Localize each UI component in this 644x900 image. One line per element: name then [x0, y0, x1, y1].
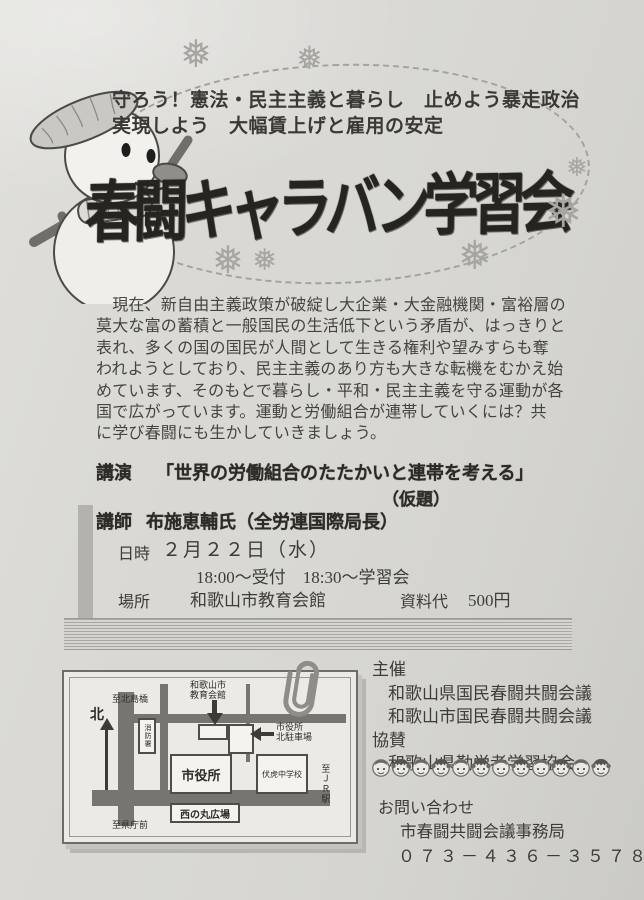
intro-line: 莫大な富の蓄積と一般国民の生活低下という矛盾が、はっきりと	[96, 316, 576, 337]
child-face-icon	[490, 756, 511, 780]
child-face-icon	[470, 756, 491, 780]
map-education-hall-label-line1: 和歌山市	[190, 680, 226, 690]
children-faces	[370, 756, 615, 780]
child-face-icon	[590, 756, 611, 780]
snowflake-icon: ❅	[252, 246, 277, 276]
child-face-icon	[390, 756, 411, 780]
intro-line: われようとしており、民主主義のあり方も大きな転機をむかえ始	[96, 359, 576, 380]
child-face-icon	[410, 756, 431, 780]
place-value: 和歌山市教育会館	[190, 586, 326, 611]
down-arrow-shaft	[212, 700, 217, 714]
lecturer-name: 布施恵輔氏（全労連国際局長）	[146, 512, 398, 532]
lecturer-row: 講師布施恵輔氏（全労連国際局長）	[96, 508, 398, 534]
child-face-icon	[510, 756, 531, 780]
snowflake-icon: ❅	[212, 242, 244, 280]
intro-line: に学び春闘にも生かしていきましょう。	[96, 423, 576, 444]
snowflake-icon: ❅	[296, 42, 323, 74]
map-parking-label: 市役所 北駐車場	[276, 722, 312, 743]
snowflake-icon: ❅	[458, 236, 492, 276]
child-face-icon	[370, 756, 391, 780]
map-education-hall-label-line2: 教育会館	[190, 690, 226, 700]
event-time: 18:00～受付 18:30～学習会	[196, 563, 409, 588]
host-name: 和歌山市国民春闘共闘会議	[388, 702, 592, 727]
left-arrow-icon	[250, 727, 261, 741]
place-label: 場所	[118, 588, 150, 612]
north-arrow-shaft	[105, 728, 108, 790]
intro-line: 現在、新自由主義政策が破綻し大企業・大金融機関・富裕層の	[96, 295, 576, 316]
slogan-line-1: 守ろう！憲法・民主主義と暮らし 止めよう暴走政治	[112, 85, 580, 112]
intro-line: 表れ、多くの国の国民が人間として生きる権利や望みすらも奪	[96, 338, 576, 359]
child-face-icon	[450, 756, 471, 780]
intro-line: めています、そのもとで暮らし・平和・民主主義を守る運動が各	[96, 381, 576, 402]
intro-paragraph: 現在、新自由主義政策が破綻し大企業・大金融機関・富裕層の 莫大な富の蓄積と一般国…	[96, 295, 576, 445]
map-education-hall-label: 和歌山市 教育会館	[190, 680, 226, 701]
map-plaza: 西の丸広場	[170, 803, 240, 823]
map-to-kitajima-label: 至北島橋	[112, 694, 148, 704]
child-face-icon	[430, 756, 451, 780]
snowflake-icon: ❅	[180, 36, 212, 74]
page-title: 春闘キャラバン学習会	[85, 148, 569, 256]
host-label: 主催	[372, 655, 406, 680]
support-label: 協賛	[372, 726, 406, 751]
fee-label: 資料代	[400, 588, 448, 612]
map-education-hall-building	[198, 724, 228, 740]
event-date: ２月２２日（水）	[162, 535, 330, 562]
map-school: 伏虎中学校	[256, 754, 308, 794]
map-parking-label-line1: 市役所	[276, 722, 312, 732]
snowflake-icon: ❅	[544, 188, 583, 234]
fee-value: 500円	[468, 586, 511, 611]
slogan-line-2: 実現しよう 大幅賃上げと雇用の安定	[112, 111, 444, 138]
contact-office: 市春闘共闘会議事務局	[400, 818, 565, 842]
map-to-kencho-label: 至県庁前	[112, 820, 148, 830]
datetime-label: 日時	[118, 540, 150, 564]
map-fire-station: 消防署	[138, 718, 156, 754]
lecture-label: 講演	[96, 463, 132, 483]
left-arrow-shaft	[260, 732, 274, 736]
flyer-page: ❅ ❅ ❅ ❅ ❅ ❅ ❅ 守ろう！憲法・民主主義と暮らし 止めよう暴走政治 実…	[0, 0, 644, 900]
child-face-icon	[550, 756, 571, 780]
snowflake-icon: ❅	[566, 154, 588, 180]
map-road	[160, 684, 168, 804]
map-to-jr-label: 至ＪＲ駅	[320, 764, 330, 804]
lecture-title: 「世界の労働組合のたたかいと連帯を考える」	[156, 463, 533, 483]
child-face-icon	[570, 756, 591, 780]
lecture-row: 講演「世界の労働組合のたたかいと連帯を考える」	[96, 459, 533, 485]
map-parking-label-line2: 北駐車場	[276, 732, 312, 742]
down-arrow-icon	[207, 713, 223, 725]
scan-artifact-band	[64, 618, 572, 650]
host-name: 和歌山県国民春闘共闘会議	[388, 679, 592, 704]
contact-phone: ０７３－４３６－３５７８	[398, 842, 644, 867]
lecture-subtitle: （仮題）	[382, 485, 450, 510]
intro-line: 国で広がっています。運動と労働組合が連帯していくには？共	[96, 402, 576, 423]
child-face-icon	[530, 756, 551, 780]
map-city-hall: 市役所	[170, 754, 232, 794]
contact-label: お問い合わせ	[378, 794, 474, 818]
lecturer-label: 講師	[96, 512, 132, 532]
